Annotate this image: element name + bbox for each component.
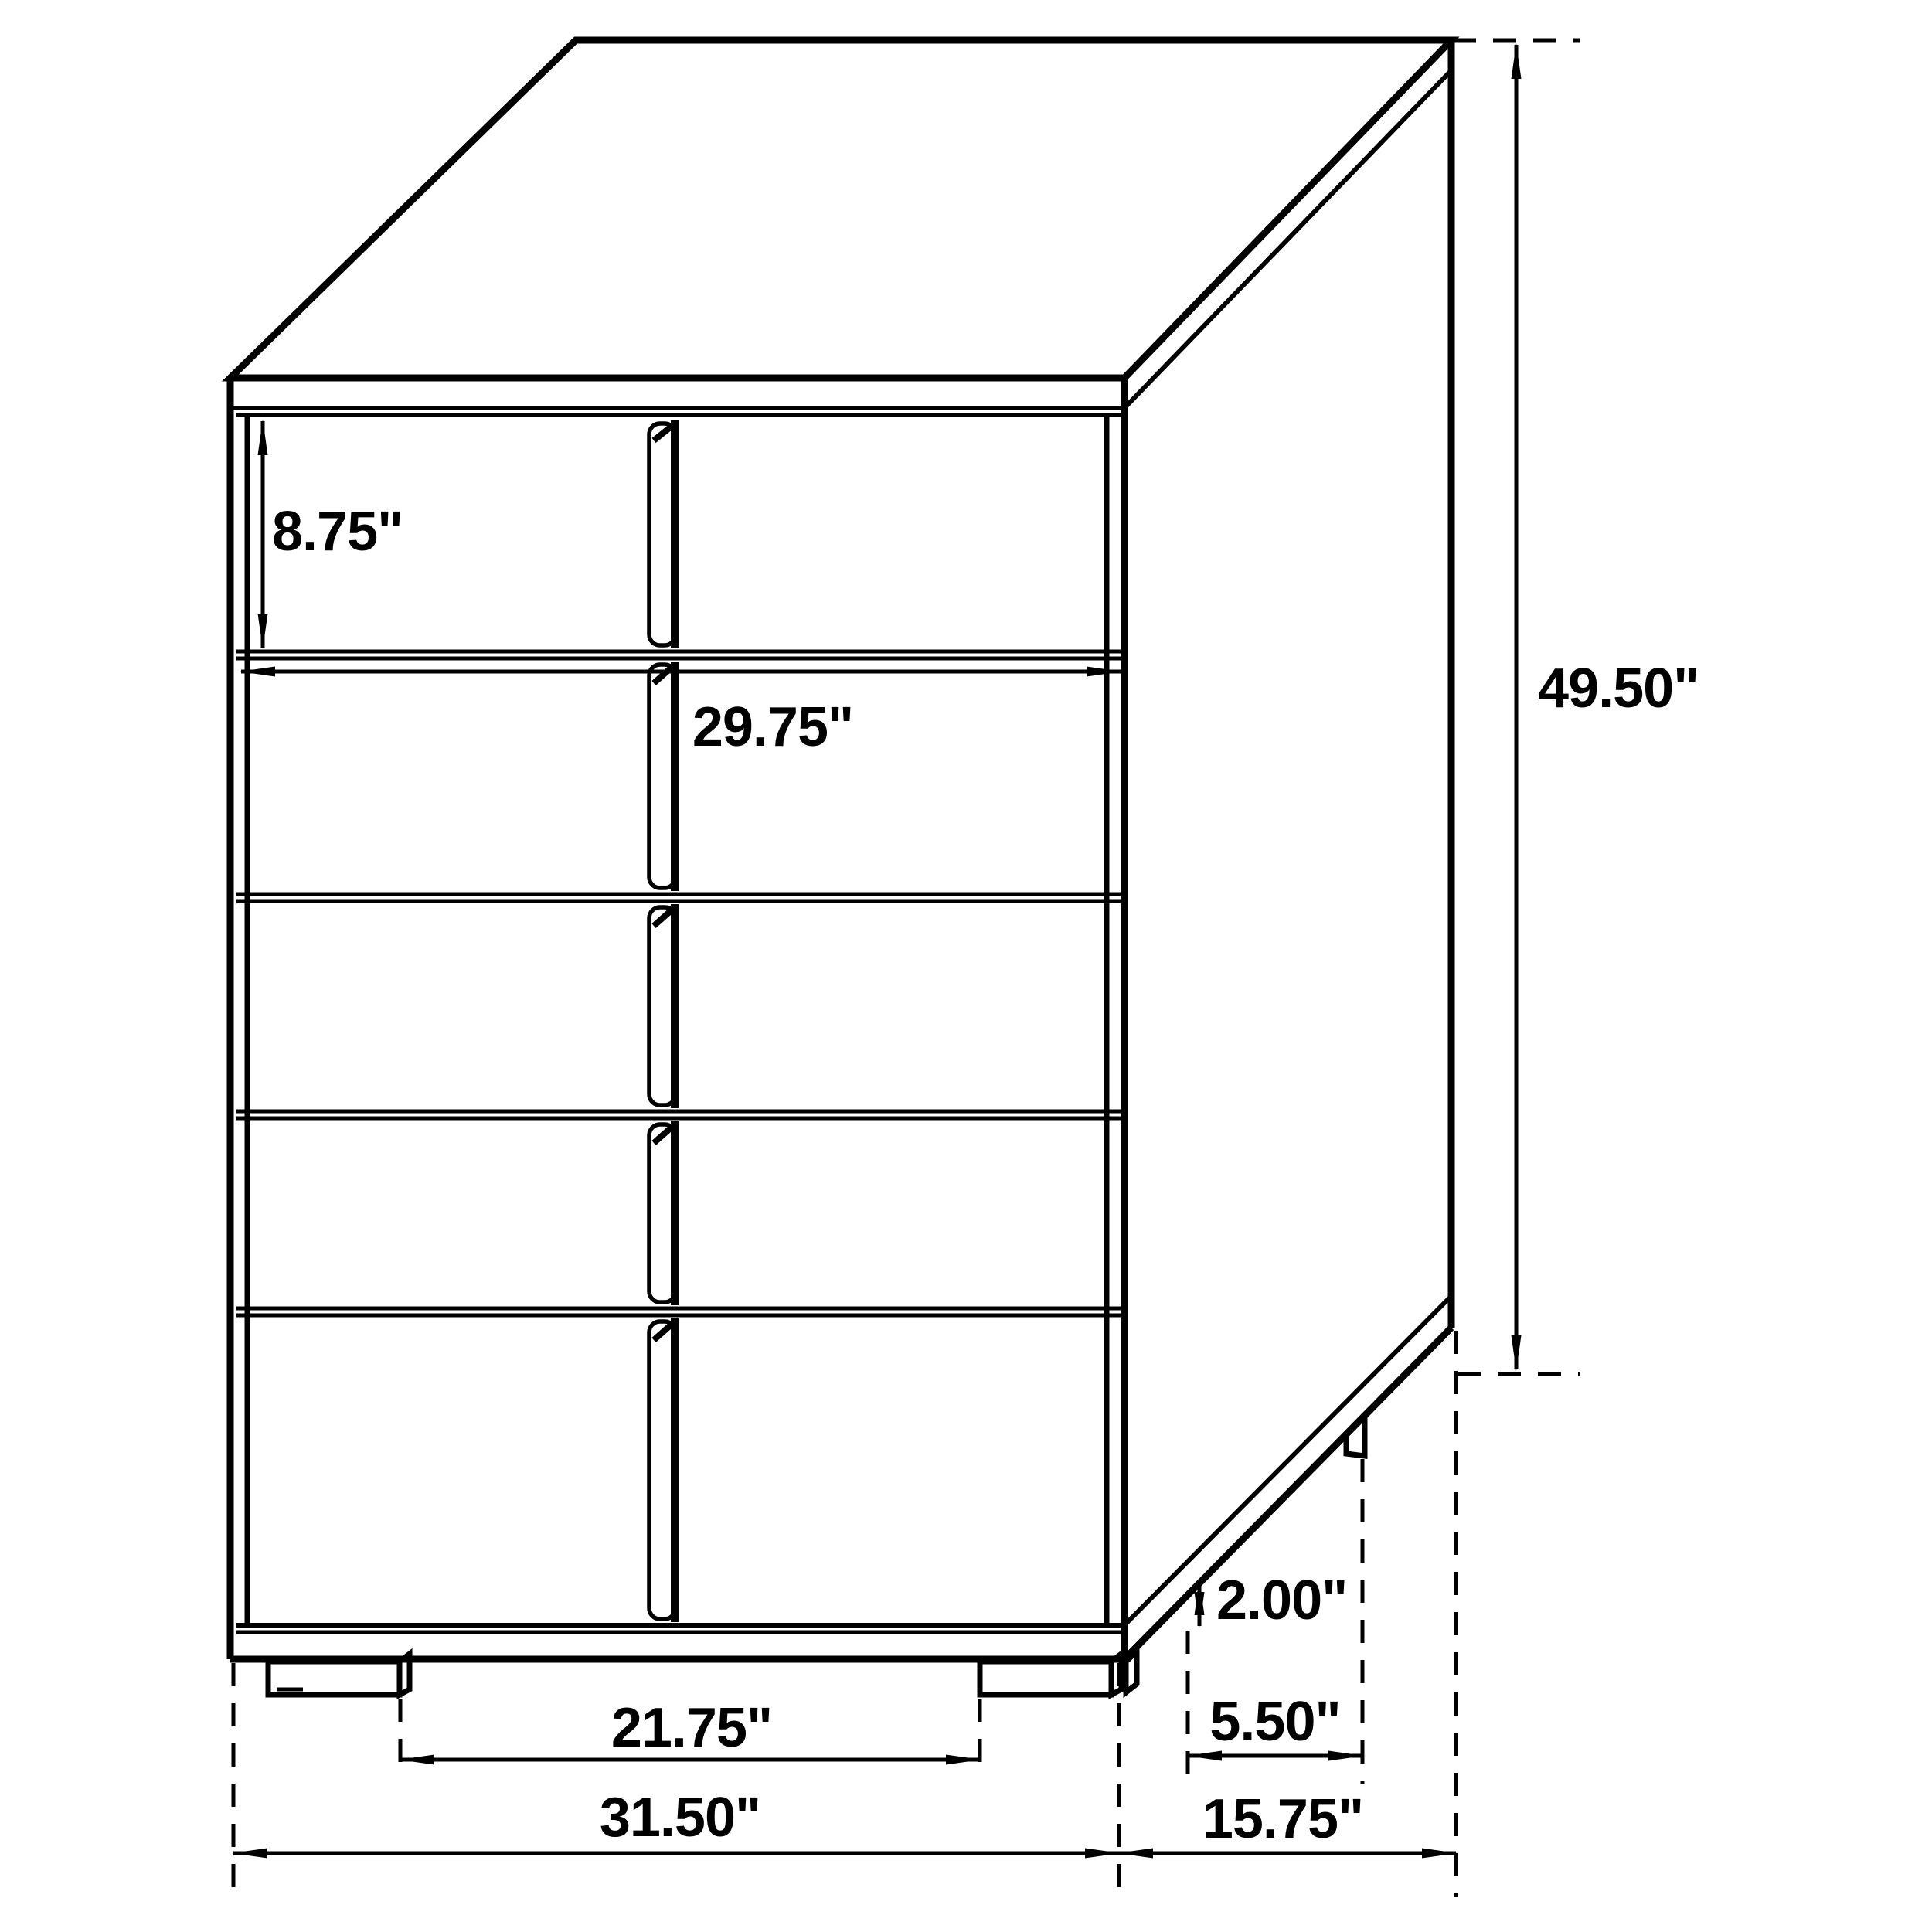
chest-dimension-drawing: 8.75" 29.75" 49.50" 2.00" 5.50" 21.75" 3… — [0, 0, 1932, 1932]
cabinet-outline — [230, 40, 1451, 1695]
divider-row-1 — [649, 420, 675, 648]
drawer-width-label: 29.75" — [692, 696, 853, 758]
overall-depth-label: 15.75" — [1202, 1788, 1363, 1850]
divider-row-2 — [649, 662, 675, 891]
divider-row-4 — [649, 1121, 675, 1305]
side-foot-spacing-label: 5.50" — [1209, 1691, 1340, 1753]
top-panel — [230, 40, 1451, 408]
drawer-center-divider — [649, 420, 675, 1622]
overall-height-label: 49.50" — [1538, 658, 1699, 719]
divider-row-5 — [649, 1318, 675, 1622]
feet — [268, 1417, 1365, 1695]
side-panel — [1124, 40, 1451, 1659]
drawer-height-label: 8.75" — [272, 501, 403, 563]
front-left-foot — [268, 1654, 410, 1695]
divider-row-3 — [649, 904, 675, 1108]
front-foot-spacing-label: 21.75" — [611, 1697, 772, 1759]
foot-height-label: 2.00" — [1216, 1570, 1347, 1631]
dimension-diagram: 8.75" 29.75" 49.50" 2.00" 5.50" 21.75" 3… — [0, 0, 1932, 1932]
overall-width-label: 31.50" — [600, 1787, 760, 1849]
